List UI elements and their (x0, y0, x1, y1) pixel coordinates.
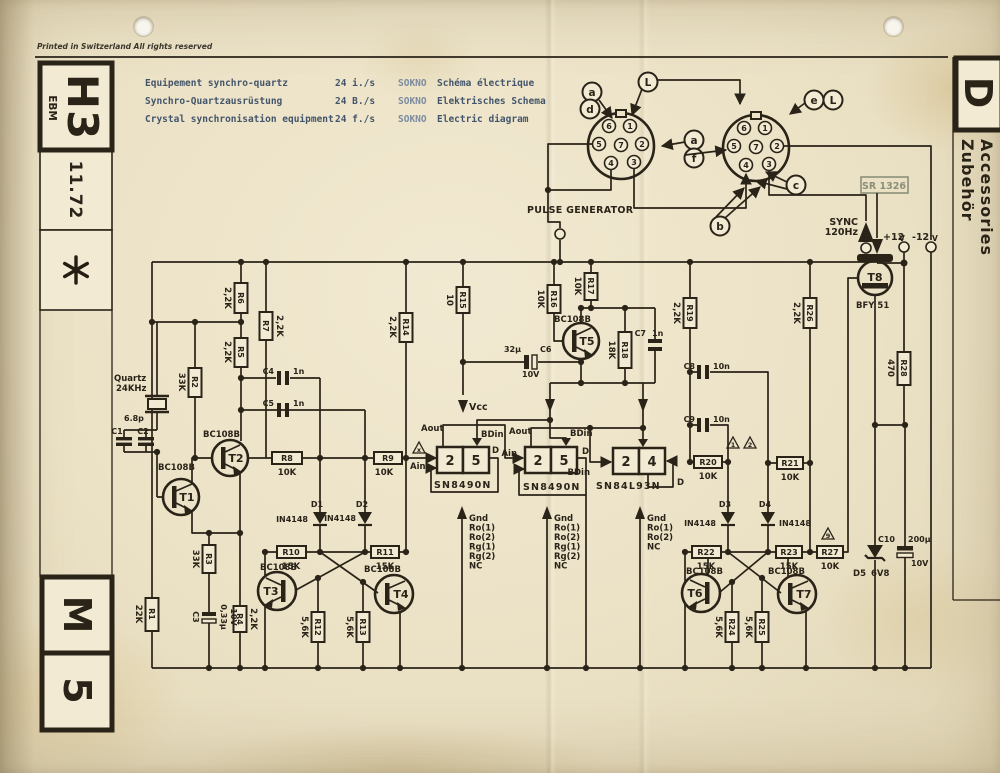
rate-en: 24 f./s (335, 114, 375, 125)
svg-text:2,2K: 2,2K (248, 608, 258, 630)
svg-text:10K: 10K (699, 472, 718, 482)
svg-text:Gnd: Gnd (469, 514, 488, 524)
svg-text:BC108B: BC108B (686, 567, 723, 577)
svg-text:IN4148: IN4148 (276, 515, 308, 524)
pin-4: 4 (608, 159, 614, 168)
m-letter: M (55, 596, 99, 635)
svg-text:10K: 10K (278, 468, 297, 478)
resistor-R1: R122K (133, 598, 159, 631)
svg-text:R23: R23 (780, 548, 797, 557)
bdin-label: BDin (481, 430, 504, 440)
svg-text:NC: NC (647, 543, 660, 553)
resistor-R25: R255,6K (743, 612, 769, 642)
svg-text:R20: R20 (699, 458, 717, 467)
resistor-R28: R28470 (885, 352, 911, 385)
svg-text:6.8p: 6.8p (124, 414, 144, 423)
svg-text:IN4148: IN4148 (324, 514, 356, 523)
svg-text:R26: R26 (805, 304, 814, 322)
svg-text:R27: R27 (821, 548, 838, 557)
svg-text:R6: R6 (236, 292, 245, 304)
pin-2: 2 (774, 142, 780, 151)
resistor-R12: R125,6K (299, 612, 325, 642)
svg-text:R15: R15 (458, 291, 467, 309)
svg-text:T8: T8 (867, 271, 882, 284)
resistor-R15: R1510 (444, 287, 470, 313)
svg-text:Rg(1): Rg(1) (554, 543, 580, 553)
svg-text:5,6K: 5,6K (713, 616, 723, 638)
transistor-T3: T3 BC108B (258, 563, 297, 610)
printed-note: Printed in Switzerland All rights reserv… (37, 42, 213, 51)
label-a: a (690, 135, 697, 147)
resistor-R18: R1818K (606, 332, 632, 368)
svg-text:33K: 33K (176, 373, 186, 392)
doc-date: 11.72 (65, 161, 85, 220)
svg-text:9: 9 (826, 532, 831, 540)
aout-label: Aout (509, 427, 532, 437)
connector-wires (548, 80, 931, 262)
svg-text:1n: 1n (293, 367, 305, 376)
svg-text:Gnd: Gnd (554, 514, 573, 524)
svg-text:SN8490N: SN8490N (434, 480, 492, 491)
svg-text:10n: 10n (713, 362, 730, 371)
svg-text:NC: NC (554, 562, 567, 572)
svg-text:2,2K: 2,2K (222, 341, 232, 363)
svg-text:BC108B: BC108B (158, 463, 195, 473)
title-de: Synchro-Quartzausrüstung (145, 96, 283, 107)
supply-terminals: +12 V -12 V (877, 232, 938, 668)
diode-D2: D2 IN4148 (324, 500, 372, 525)
label-L: L (830, 95, 837, 107)
svg-text:NC: NC (469, 562, 482, 572)
svg-text:C2: C2 (137, 427, 148, 436)
doc-de: Elektrisches Schema (437, 96, 546, 107)
diode-D4: D4 IN4148 (759, 500, 811, 528)
svg-text:C3: C3 (191, 611, 200, 622)
svg-text:Ro(1): Ro(1) (647, 524, 673, 534)
title-fr: Equipement synchro-quartz (145, 78, 288, 89)
svg-text:32μ: 32μ (504, 345, 521, 354)
svg-text:5: 5 (471, 454, 480, 469)
svg-text:2,2K: 2,2K (274, 315, 284, 337)
transistor-T1: T1 BC108B (158, 463, 199, 515)
svg-text:2: 2 (533, 454, 542, 469)
ic-1-divider: 2 5 SN8490N (434, 447, 492, 491)
svg-text:5,6K: 5,6K (344, 616, 354, 638)
svg-text:D4: D4 (759, 500, 772, 509)
sr-number: SR 1326 (862, 181, 906, 192)
d-label: D (582, 447, 589, 457)
pulse-generator-label: PULSE GENERATOR (527, 205, 634, 216)
svg-text:C10: C10 (878, 535, 895, 544)
resistor-R13: R135,6K (344, 612, 370, 642)
svg-text:Ro(1): Ro(1) (469, 524, 495, 534)
svg-text:R5: R5 (236, 346, 245, 358)
sync-output: SYNC 120Hz (825, 217, 874, 253)
transistor-T7: T7 BC108B (768, 567, 816, 613)
svg-text:SN84L93N: SN84L93N (596, 481, 661, 492)
svg-text:T2: T2 (228, 452, 243, 465)
vcc-supply: Vcc (458, 400, 488, 413)
svg-text:R24: R24 (727, 618, 736, 636)
diode-D1: D1 IN4148 (276, 500, 327, 525)
svg-text:D3: D3 (719, 500, 731, 509)
svg-text:R16: R16 (549, 290, 558, 308)
pulse-terminal (555, 229, 565, 239)
svg-text:D2: D2 (356, 500, 368, 509)
svg-text:R13: R13 (358, 618, 367, 635)
resistor-R5: R52,2K (222, 338, 248, 367)
capacitor-C4: C4 1n (263, 367, 305, 385)
resistor-R14: R142,2K (387, 313, 413, 342)
svg-text:2,2K: 2,2K (791, 302, 801, 324)
svg-text:R11: R11 (376, 548, 394, 557)
svg-text:R9: R9 (382, 454, 394, 463)
svg-text:R25: R25 (757, 618, 766, 636)
resistor-R21: R2110K (777, 457, 803, 483)
svg-text:10n: 10n (713, 415, 730, 424)
svg-text:T3: T3 (263, 585, 278, 598)
resistor-R3: R333K (190, 545, 216, 573)
svg-text:2: 2 (748, 441, 753, 449)
pin-6: 6 (741, 124, 747, 133)
resistor-R24: R245,6K (713, 612, 739, 642)
vcc-label: Vcc (469, 402, 488, 413)
resistor-R2: R233K (176, 368, 202, 397)
svg-text:5,6K: 5,6K (743, 616, 753, 638)
resistor-R8: R810K (272, 452, 302, 478)
svg-text:Ro(2): Ro(2) (647, 533, 673, 543)
svg-text:R21: R21 (781, 459, 799, 468)
brand: EBM (46, 95, 58, 121)
title-block: Equipement synchro-quartz 24 i./s SOKNO … (145, 78, 546, 125)
svg-text:10K: 10K (572, 277, 582, 296)
svg-text:SN8490N: SN8490N (523, 482, 581, 493)
resistor-R6: R62,2K (222, 283, 248, 313)
svg-text:2: 2 (621, 455, 630, 470)
svg-text:Ro(2): Ro(2) (469, 533, 495, 543)
svg-text:5: 5 (559, 454, 568, 469)
svg-text:R12: R12 (313, 618, 322, 635)
resistor-R20: R2010K (694, 456, 722, 482)
label-d: d (586, 104, 594, 116)
svg-text:C4: C4 (263, 367, 275, 376)
svg-text:10K: 10K (535, 290, 545, 309)
svg-text:BFY 51: BFY 51 (856, 301, 889, 311)
code-stamp: SOKNO (398, 96, 427, 107)
svg-text:BC108B: BC108B (203, 430, 240, 440)
svg-text:1n: 1n (293, 399, 305, 408)
diode-D3: D3 IN4148 (684, 500, 735, 528)
label-c: c (793, 180, 799, 192)
svg-text:R10: R10 (282, 548, 300, 557)
pin-3: 3 (766, 160, 772, 169)
svg-text:R28: R28 (899, 359, 908, 377)
svg-text:2,2K: 2,2K (222, 287, 232, 309)
d-label: D (677, 478, 684, 488)
left-margin-column: H3 EBM 11.72 M 5 (40, 63, 112, 730)
ic-3-divider: 2 4 SN84L93N (596, 448, 665, 492)
svg-text:10V: 10V (229, 608, 238, 626)
resistor-R16: R1610K (535, 285, 561, 313)
svg-text:24KHz: 24KHz (116, 384, 147, 394)
svg-text:Rg(2): Rg(2) (554, 552, 580, 562)
code-stamp: SOKNO (398, 78, 427, 89)
svg-text:C6: C6 (540, 345, 552, 354)
svg-text:R18: R18 (620, 341, 629, 359)
svg-text:BC108B: BC108B (768, 567, 805, 577)
svg-text:R19: R19 (685, 304, 694, 322)
label-b: b (716, 221, 724, 233)
svg-text:R14: R14 (401, 318, 410, 336)
capacitor-C7: C7 1n (635, 329, 664, 351)
code-stamp: SOKNO (398, 114, 427, 125)
section-label-en: Accessories (977, 139, 996, 256)
resistor-R17: R1710K (572, 273, 598, 300)
resistor-R7: R72,2K (260, 312, 285, 340)
svg-text:0,33μ: 0,33μ (219, 604, 228, 630)
svg-text:R7: R7 (261, 320, 270, 332)
svg-text:T1: T1 (179, 491, 194, 504)
pin-7: 7 (753, 143, 759, 152)
capacitor-C5: C5 1n (263, 399, 305, 417)
pin-1: 1 (762, 124, 768, 133)
svg-text:2,2K: 2,2K (671, 302, 681, 324)
right-margin-column: D Zubehör Accessories (953, 57, 1000, 600)
pin-5: 5 (596, 140, 602, 149)
svg-text:R3: R3 (204, 553, 213, 565)
pin-1: 1 (627, 122, 633, 131)
svg-text:IN4148: IN4148 (779, 519, 811, 528)
svg-text:T5: T5 (579, 335, 594, 348)
svg-text:T4: T4 (393, 588, 409, 601)
pin-5: 5 (731, 142, 737, 151)
svg-text:22K: 22K (133, 605, 143, 624)
scanned-schematic-sheet: Printed in Switzerland All rights reserv… (0, 0, 1000, 773)
svg-text:BC108B: BC108B (260, 563, 297, 573)
svg-text:R1: R1 (147, 608, 156, 620)
svg-text:10V: 10V (911, 559, 929, 568)
svg-text:10V: 10V (522, 370, 540, 379)
resistor-R9: R910K (374, 452, 402, 478)
svg-text:2: 2 (445, 454, 454, 469)
svg-text:10K: 10K (375, 468, 394, 478)
label-L: L (645, 77, 652, 89)
resistor-R26: R262,2K (791, 298, 817, 328)
doc-fr: Schéma électrique (437, 78, 535, 89)
doc-en: Electric diagram (437, 114, 529, 125)
svg-text:6V8: 6V8 (871, 569, 889, 579)
ain-label: Ain (501, 449, 517, 459)
svg-text:Ro(1): Ro(1) (554, 524, 580, 534)
pin-7: 7 (618, 141, 624, 150)
transistor-T5: T5 BC108B (554, 315, 599, 359)
svg-text:10K: 10K (821, 562, 840, 572)
svg-text:R17: R17 (586, 277, 595, 294)
bdin-label: BDin (568, 468, 591, 478)
svg-text:1: 1 (731, 441, 736, 449)
svg-text:10K: 10K (781, 473, 800, 483)
svg-text:BC108B: BC108B (364, 565, 401, 575)
bdin-label: BDin (570, 429, 593, 439)
din-connector-left: 6 1 5 7 2 4 3 (588, 110, 654, 179)
svg-text:R22: R22 (697, 548, 714, 557)
svg-text:2,2K: 2,2K (387, 316, 397, 338)
section-label-de: Zubehör (958, 139, 977, 222)
svg-text:4: 4 (647, 455, 656, 470)
zener-D5: D5 6V8 (853, 545, 889, 579)
five-digit: 5 (55, 677, 99, 704)
pin-6: 6 (606, 122, 612, 131)
label-a: a (588, 87, 595, 99)
minus12-label: -12 (912, 232, 929, 243)
pin-2: 2 (639, 140, 645, 149)
din-connector-right: 6 1 5 7 2 4 3 (723, 112, 789, 181)
svg-text:Gnd: Gnd (647, 514, 666, 524)
pin-4: 4 (743, 161, 749, 170)
svg-text:Ro(2): Ro(2) (554, 533, 580, 543)
label-e: e (810, 95, 817, 107)
svg-text:Rg(1): Rg(1) (469, 543, 495, 553)
svg-text:5,6K: 5,6K (299, 616, 309, 638)
sync-freq: 120Hz (825, 227, 859, 238)
resistor-R27: R2710K (817, 546, 843, 572)
rate-de: 24 B./s (335, 96, 375, 107)
svg-text:T6: T6 (687, 587, 703, 600)
title-en: Crystal synchronisation equipment (145, 114, 334, 125)
svg-text:T7: T7 (796, 588, 811, 601)
quartz-crystal: Quartz 24KHz 6.8p (114, 374, 169, 423)
svg-text:1n: 1n (652, 329, 664, 338)
svg-text:10: 10 (444, 294, 454, 306)
svg-text:C7: C7 (635, 329, 646, 338)
svg-text:470: 470 (885, 359, 895, 377)
svg-text:C9: C9 (684, 415, 696, 424)
ain-label: Ain (410, 462, 426, 472)
svg-text:Quartz: Quartz (114, 374, 146, 384)
pin-3: 3 (631, 158, 637, 167)
svg-text:D5: D5 (853, 569, 866, 579)
section-letter: D (956, 77, 1000, 110)
capacitor-C3: C3 0,33μ 10V (191, 604, 238, 630)
doc-code: H3 (58, 74, 107, 140)
rate-fr: 24 i./s (335, 78, 375, 89)
svg-text:R8: R8 (281, 454, 293, 463)
svg-text:18K: 18K (606, 341, 616, 360)
svg-text:C5: C5 (263, 399, 275, 408)
d-label: D (492, 446, 499, 456)
svg-text:D1: D1 (311, 500, 324, 509)
svg-text:C8: C8 (684, 362, 696, 371)
svg-text:Rg(2): Rg(2) (469, 552, 495, 562)
svg-text:IN4148: IN4148 (684, 519, 716, 528)
svg-text:200μ: 200μ (908, 535, 931, 544)
svg-text:R2: R2 (190, 376, 199, 388)
aout-label: Aout (421, 424, 444, 434)
svg-text:BC108B: BC108B (554, 315, 591, 325)
svg-text:33K: 33K (190, 550, 200, 569)
resistor-R19: R192,2K (671, 298, 697, 328)
transistor-T6: T6 BC108B (682, 567, 723, 612)
svg-text:C1: C1 (111, 427, 123, 436)
